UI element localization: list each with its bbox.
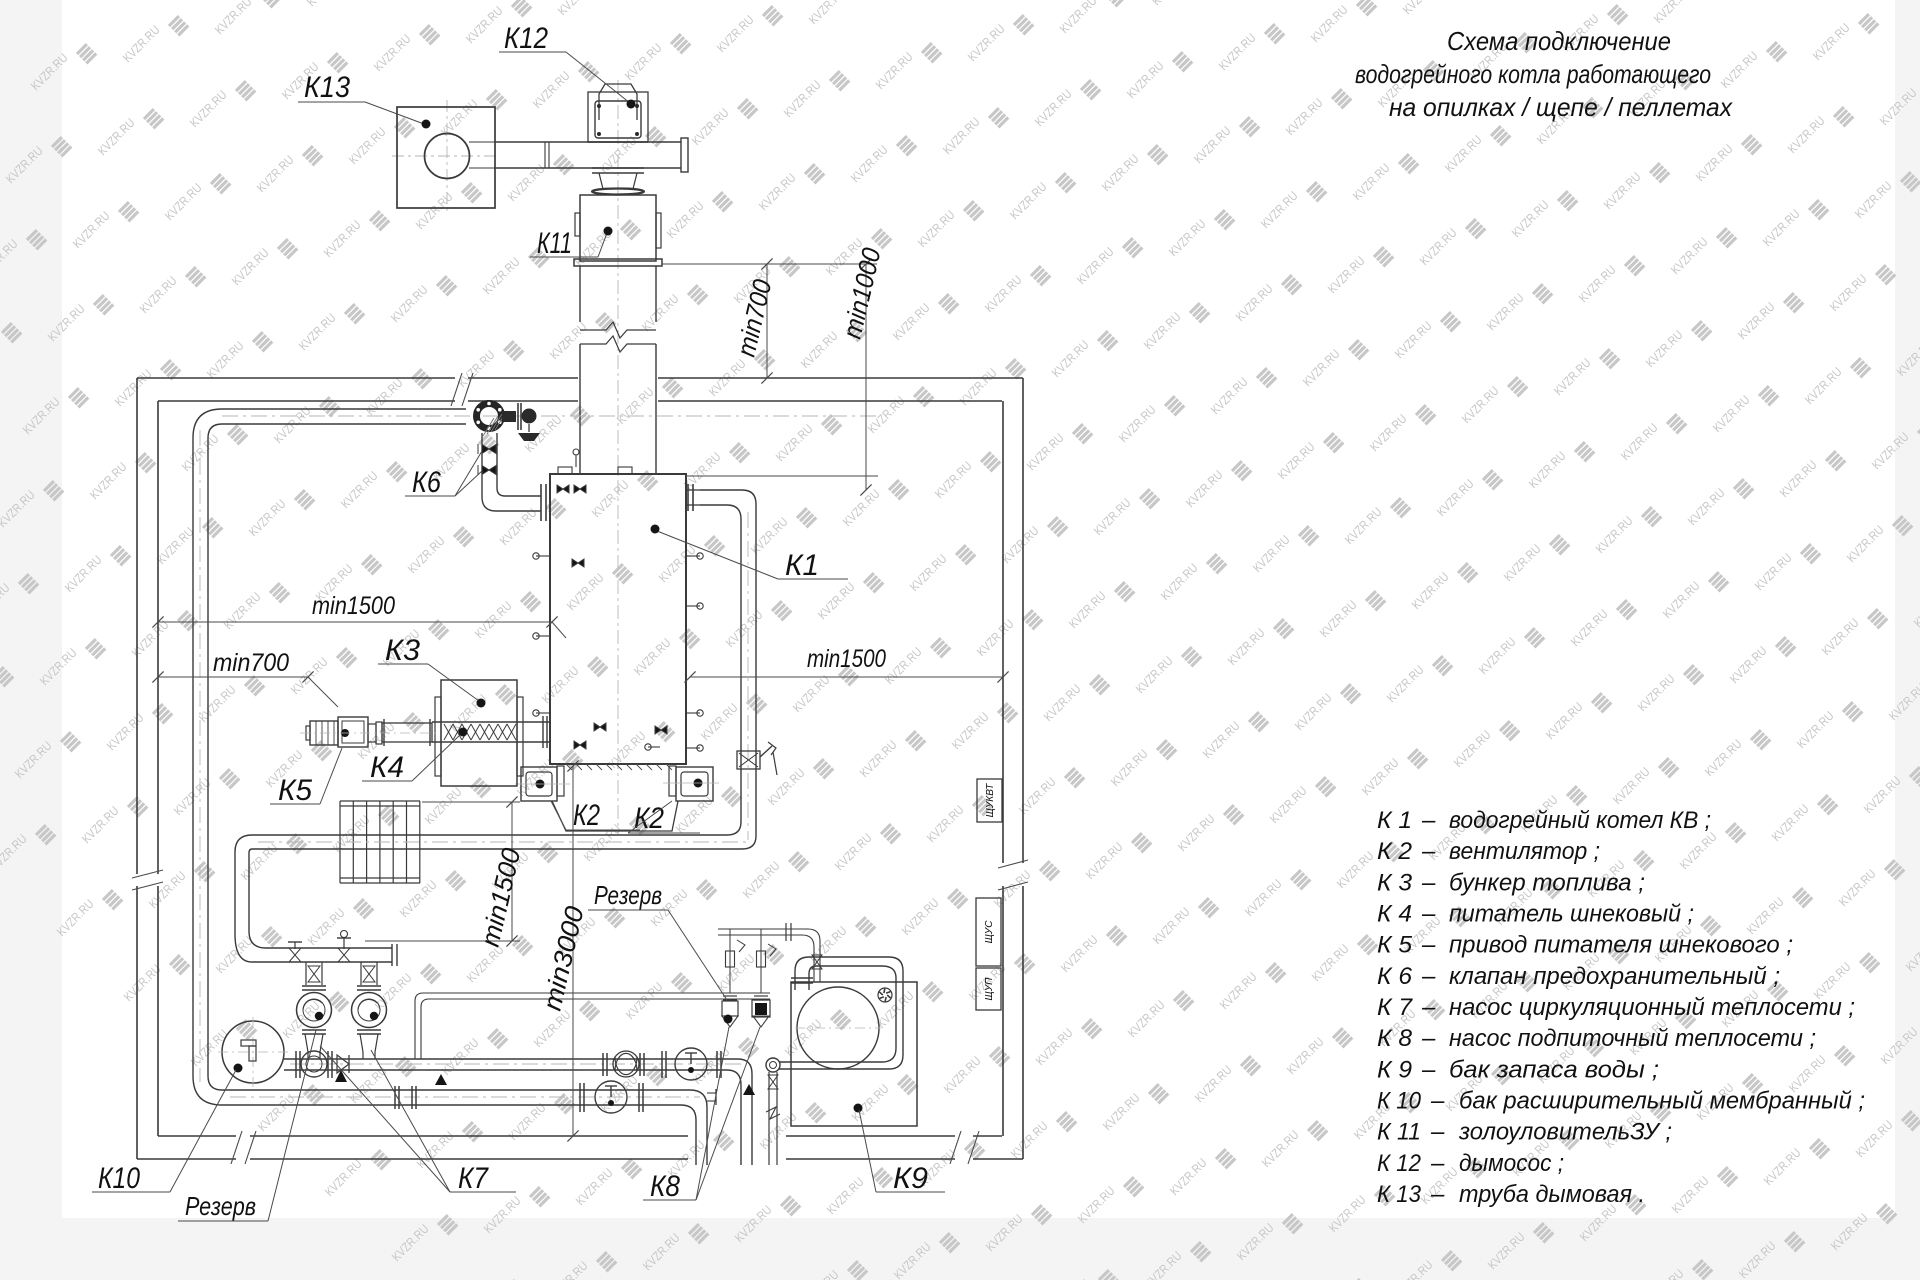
svg-text:водогрейный котел КВ ;: водогрейный котел КВ ;: [1449, 807, 1711, 834]
svg-text:min700: min700: [213, 649, 289, 677]
svg-text:дымосос ;: дымосос ;: [1459, 1150, 1564, 1177]
svg-text:–: –: [1430, 1088, 1445, 1115]
svg-text:бак расширительный мембранный: бак расширительный мембранный ;: [1459, 1088, 1865, 1115]
svg-text:К 8: К 8: [1377, 1025, 1413, 1052]
svg-text:–: –: [1421, 869, 1436, 896]
svg-text:К 10: К 10: [1377, 1088, 1422, 1115]
svg-text:К 12: К 12: [1377, 1150, 1421, 1177]
svg-text:привод питателя шнекового ;: привод питателя шнекового ;: [1449, 932, 1793, 959]
svg-text:К6: К6: [412, 466, 441, 499]
svg-text:К8: К8: [650, 1170, 680, 1203]
svg-text:К 1: К 1: [1377, 807, 1412, 834]
svg-text:К 2: К 2: [1377, 838, 1412, 865]
svg-text:–: –: [1421, 838, 1436, 865]
svg-text:–: –: [1421, 807, 1436, 834]
svg-text:К4: К4: [370, 751, 404, 784]
svg-text:вентилятор ;: вентилятор ;: [1449, 838, 1600, 865]
svg-text:ЩУП: ЩУП: [984, 977, 995, 1001]
svg-text:на опилках / щепе / пеллетах: на опилках / щепе / пеллетах: [1389, 92, 1733, 122]
svg-text:–: –: [1421, 932, 1436, 959]
svg-text:К 3: К 3: [1377, 869, 1413, 896]
svg-text:Резерв: Резерв: [185, 1191, 256, 1221]
svg-text:К 5: К 5: [1377, 932, 1413, 959]
svg-text:К 13: К 13: [1377, 1181, 1422, 1208]
svg-text:золоуловительЗУ ;: золоуловительЗУ ;: [1458, 1119, 1672, 1146]
svg-text:К9: К9: [893, 1162, 928, 1195]
svg-text:ЩУКВТ: ЩУКВТ: [985, 783, 996, 818]
svg-text:–: –: [1430, 1181, 1445, 1208]
svg-text:min1500: min1500: [807, 645, 886, 673]
svg-text:–: –: [1430, 1150, 1445, 1177]
svg-text:К1: К1: [785, 549, 819, 582]
svg-text:К2: К2: [573, 799, 600, 832]
svg-text:К10: К10: [98, 1162, 140, 1195]
svg-text:–: –: [1421, 963, 1436, 990]
svg-text:К 9: К 9: [1377, 1056, 1412, 1083]
svg-text:min1500: min1500: [312, 592, 395, 620]
svg-text:К2: К2: [634, 802, 664, 835]
svg-text:–: –: [1421, 1025, 1436, 1052]
svg-text:–: –: [1430, 1119, 1445, 1146]
svg-text:бак запаса воды ;: бак запаса воды ;: [1449, 1056, 1659, 1083]
svg-text:К5: К5: [278, 774, 312, 807]
svg-text:К7: К7: [458, 1162, 489, 1195]
svg-text:К3: К3: [385, 634, 420, 667]
svg-text:–: –: [1421, 1056, 1436, 1083]
svg-text:насос циркуляционный теплосети: насос циркуляционный теплосети ;: [1449, 994, 1855, 1021]
svg-text:К 11: К 11: [1377, 1119, 1421, 1146]
svg-text:водогрейного котла работающего: водогрейного котла работающего: [1355, 59, 1711, 89]
svg-text:К 6: К 6: [1377, 963, 1413, 990]
svg-text:К13: К13: [304, 71, 350, 104]
svg-text:–: –: [1421, 901, 1436, 928]
svg-text:ЩУС: ЩУС: [984, 920, 995, 944]
svg-text:бункер топлива ;: бункер топлива ;: [1449, 869, 1645, 896]
svg-text:К 4: К 4: [1377, 901, 1412, 928]
svg-text:К 7: К 7: [1377, 994, 1414, 1021]
svg-text:труба дымовая .: труба дымовая .: [1459, 1181, 1645, 1208]
svg-text:К11: К11: [537, 227, 572, 260]
svg-text:питатель шнековый ;: питатель шнековый ;: [1449, 901, 1694, 928]
svg-text:Схема подключение: Схема подключение: [1447, 26, 1671, 56]
svg-text:Резерв: Резерв: [594, 880, 662, 910]
svg-text:клапан предохранительный ;: клапан предохранительный ;: [1449, 963, 1780, 990]
svg-text:К12: К12: [504, 22, 548, 55]
svg-text:–: –: [1421, 994, 1436, 1021]
svg-text:насос подпиточный теплосети ;: насос подпиточный теплосети ;: [1449, 1025, 1816, 1052]
